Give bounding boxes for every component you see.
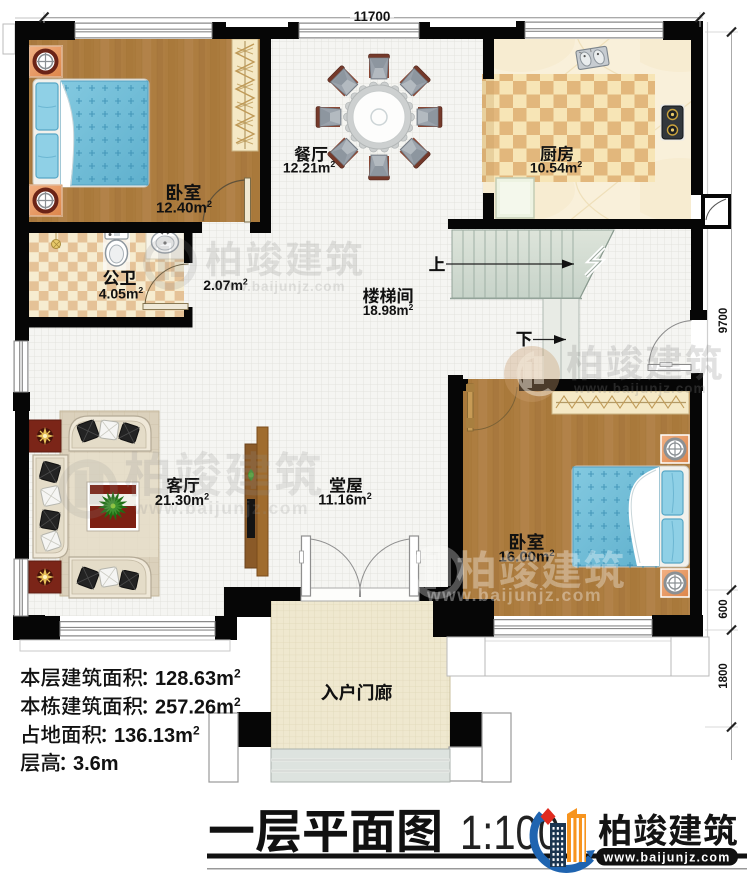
- svg-text:136.13m2: 136.13m2: [114, 724, 200, 748]
- svg-text:11.16m2: 11.16m2: [318, 491, 371, 509]
- svg-text:12.40m2: 12.40m2: [156, 199, 212, 217]
- svg-text:9700: 9700: [718, 308, 730, 334]
- svg-text:4.05m2: 4.05m2: [99, 285, 144, 301]
- svg-text:1800: 1800: [718, 663, 730, 689]
- svg-text:11700: 11700: [354, 9, 391, 24]
- svg-text:www.baijunjz.com: www.baijunjz.com: [573, 381, 707, 396]
- svg-text:www.baijunjz.com: www.baijunjz.com: [426, 585, 602, 605]
- svg-text:12.21m2: 12.21m2: [283, 159, 335, 175]
- svg-text:128.63m2: 128.63m2: [155, 667, 241, 691]
- svg-text:3.6m: 3.6m: [73, 753, 119, 775]
- svg-text:18.98m2: 18.98m2: [363, 302, 414, 318]
- svg-text:600: 600: [718, 599, 730, 618]
- svg-text:10.54m2: 10.54m2: [530, 159, 582, 175]
- svg-text:www.baijunjz.com: www.baijunjz.com: [133, 498, 309, 518]
- svg-text:257.26m2: 257.26m2: [155, 695, 241, 719]
- svg-text:www.baijunjz.com: www.baijunjz.com: [602, 851, 730, 865]
- svg-text:www.baijunjz.com: www.baijunjz.com: [212, 279, 346, 294]
